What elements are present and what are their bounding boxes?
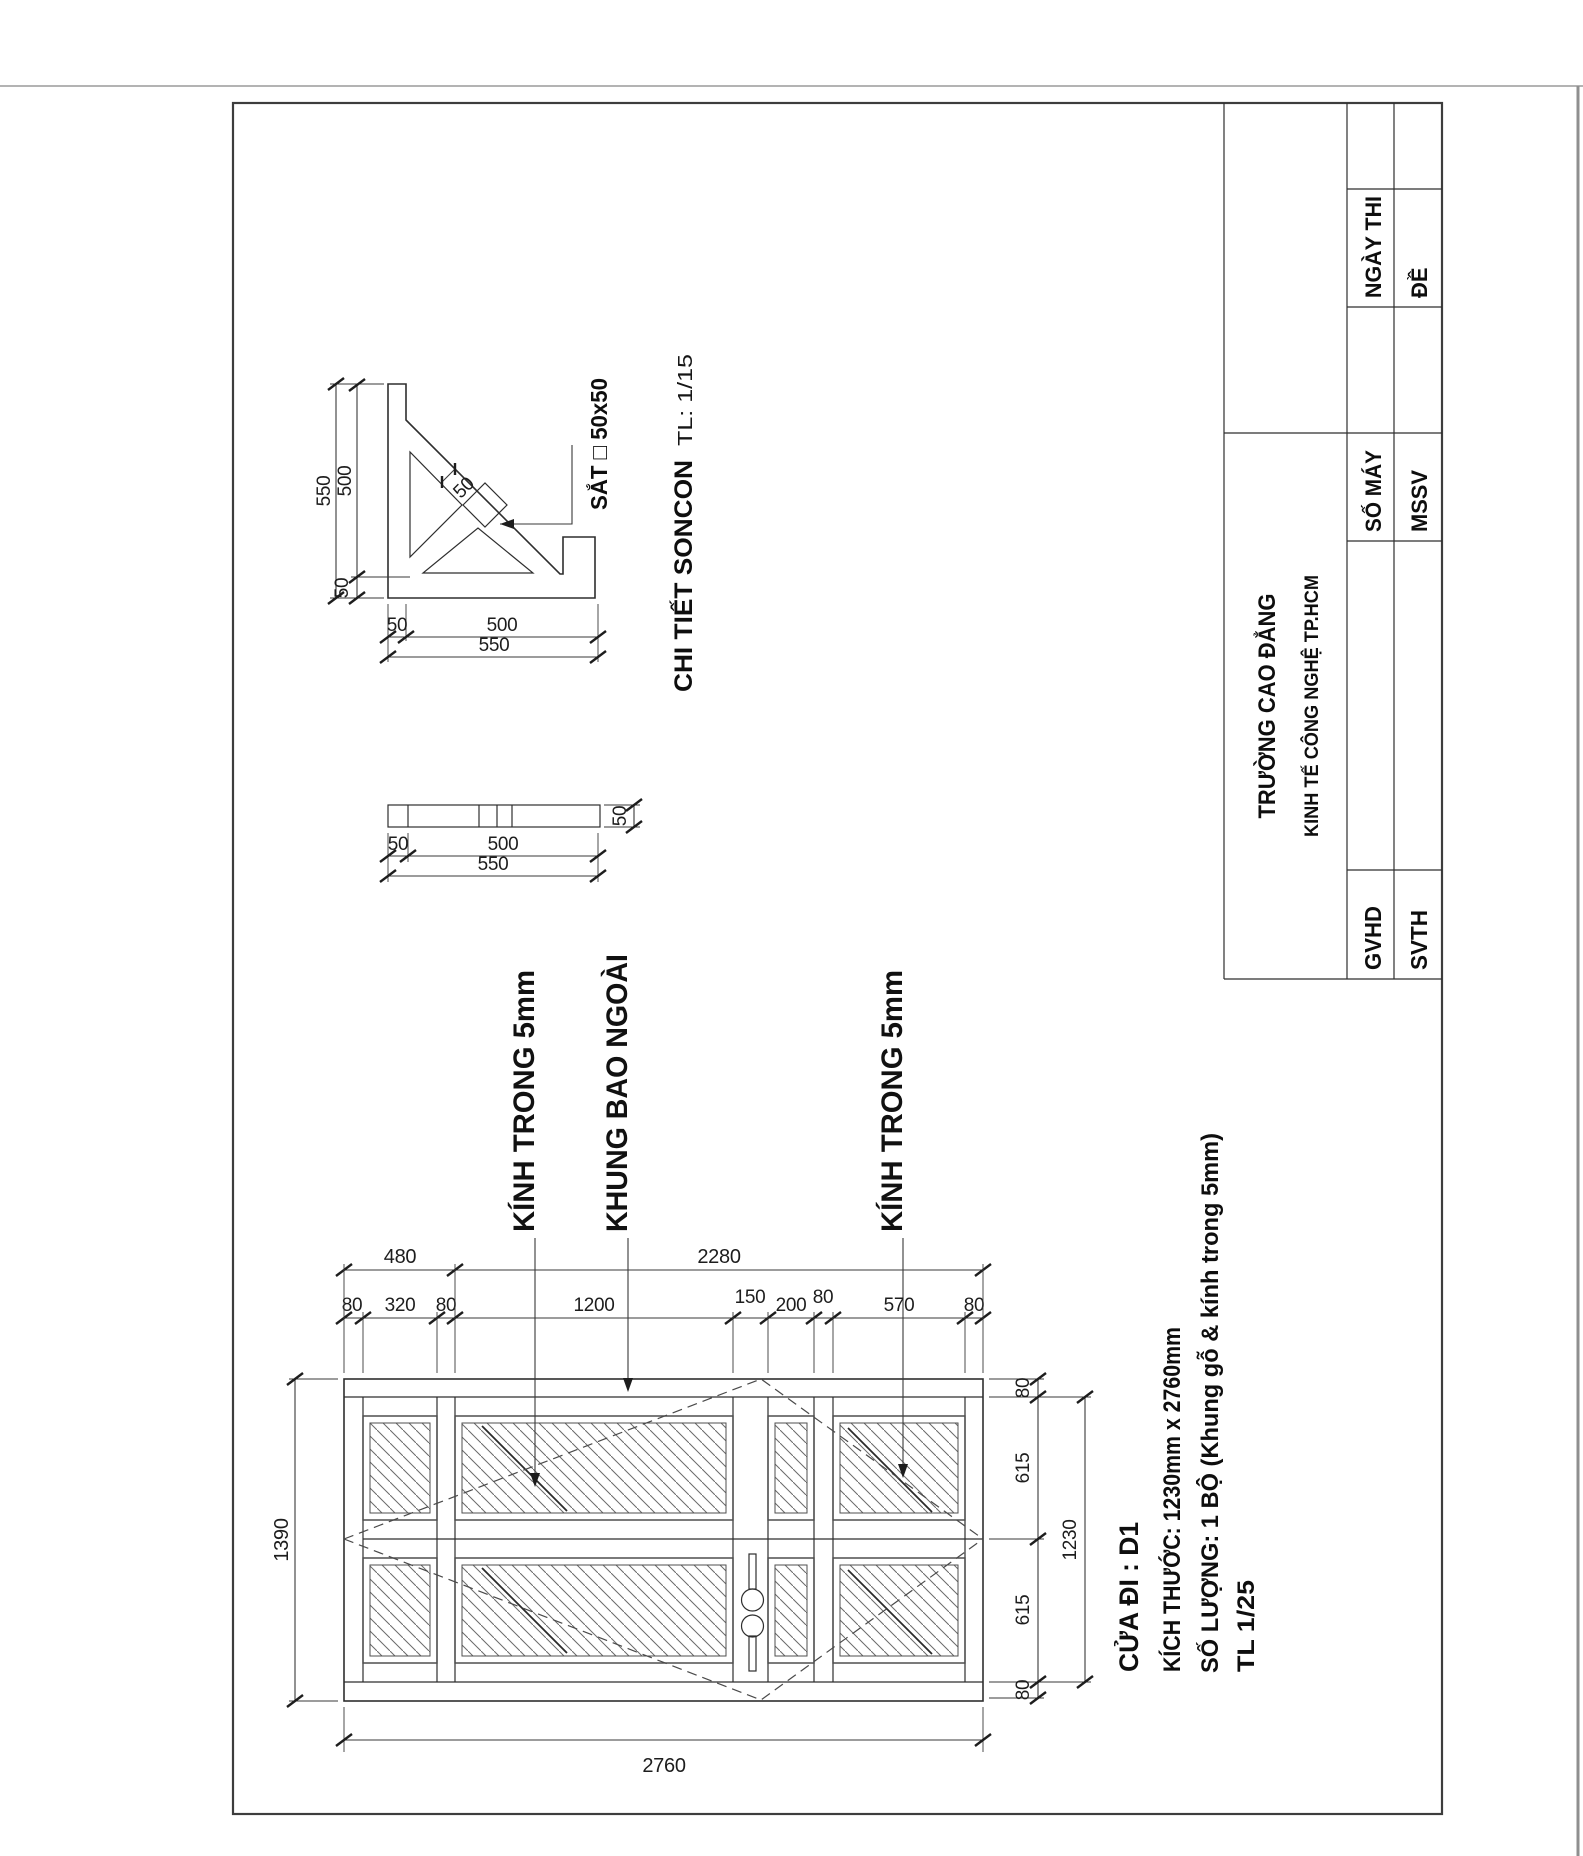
info-line1: CỬA ĐI : D1 <box>1112 1522 1144 1672</box>
dim-label-brace-50: 50 <box>449 473 478 502</box>
field-gvhd: GVHD <box>1360 906 1386 970</box>
drawing-canvas: TRƯỜNG CAO ĐẲNG KINH TẾ CÔNG NGHỆ TP.HCM… <box>0 0 1583 1856</box>
bracket-cutout-lower <box>423 528 533 573</box>
dim-80c: 80 <box>813 1287 834 1308</box>
dim-label-bar-left: 50 <box>388 834 409 855</box>
dim-80b: 80 <box>436 1295 457 1316</box>
label-glass-right: KÍNH TRONG 5mm <box>875 970 909 1232</box>
dim-label-bar-550: 550 <box>478 854 509 875</box>
dim-label-b550: 550 <box>479 635 510 656</box>
dim-2280: 2280 <box>697 1246 740 1268</box>
bracket-outline <box>388 384 595 598</box>
dim-2760: 2760 <box>642 1755 685 1777</box>
dim-label-bar-500: 500 <box>488 834 519 855</box>
soncon-bracket-detail: 50 SẮT □ 50x50 550 500 50 <box>314 378 612 663</box>
door-annotation-labels: KÍNH TRONG 5mm KHUNG BAO NGOÀI KÍNH TRON… <box>507 954 909 1487</box>
leader-glass-left: KÍNH TRONG 5mm <box>507 970 541 1487</box>
info-line2: KÍCH THƯỚC: 1230mm x 2760mm <box>1158 1327 1186 1672</box>
material-label-group: SẮT □ 50x50 <box>500 378 612 529</box>
title-block: TRƯỜNG CAO ĐẲNG KINH TẾ CÔNG NGHỆ TP.HCM… <box>1224 103 1442 979</box>
dim-label-bar-50: 50 <box>610 806 631 827</box>
bracket-left-dims: 550 500 50 <box>314 378 410 604</box>
dim-label-500: 500 <box>335 466 356 497</box>
leader-frame: KHUNG BAO NGOÀI <box>600 954 634 1392</box>
flat-bar-thickness-dim: 50 <box>604 799 642 833</box>
dim-r80a: 80 <box>1013 1378 1034 1399</box>
dim-r615b: 615 <box>1013 1595 1034 1626</box>
info-line3: SỐ LƯỢNG: 1 BỘ (Khung gỗ & kính trong 5m… <box>1196 1133 1224 1673</box>
brace-width-dim: 50 <box>442 463 479 503</box>
dim-570: 570 <box>884 1295 915 1316</box>
dim-label-b50: 50 <box>387 615 408 636</box>
detail-title-group: CHI TIẾT SONCON TL: 1/15 <box>669 354 698 692</box>
dim-label-b500: 500 <box>487 615 518 636</box>
dim-80a: 80 <box>342 1295 363 1316</box>
door-elevation <box>344 1379 983 1701</box>
field-mssv: MSSV <box>1407 470 1432 532</box>
material-label: SẮT □ 50x50 <box>585 378 612 510</box>
dim-80d: 80 <box>964 1295 985 1316</box>
dim-480: 480 <box>384 1246 417 1268</box>
dim-200: 200 <box>776 1295 807 1316</box>
flat-bar-detail: 50 50 500 550 <box>380 799 642 882</box>
flat-bar-outline <box>388 805 600 827</box>
dim-label-50: 50 <box>332 578 353 599</box>
dim-r615a: 615 <box>1013 1453 1034 1484</box>
dim-bottom-group: 2760 <box>336 1707 991 1777</box>
door-handle <box>742 1554 764 1671</box>
field-svth: SVTH <box>1406 910 1432 970</box>
bracket-bottom-dims: 50 500 550 <box>380 604 606 663</box>
field-ngay-thi: NGÀY THI <box>1361 196 1386 298</box>
dim-1230: 1230 <box>1060 1519 1081 1560</box>
dim-right-group: 80 615 615 80 1230 <box>989 1373 1093 1704</box>
drawing-page: TRƯỜNG CAO ĐẲNG KINH TẾ CÔNG NGHỆ TP.HCM… <box>0 0 1583 1856</box>
school-name-line1: TRƯỜNG CAO ĐẲNG <box>1253 594 1281 819</box>
dim-150: 150 <box>735 1287 766 1308</box>
dim-1390: 1390 <box>271 1518 293 1561</box>
school-name-line2: KINH TẾ CÔNG NGHỆ TP.HCM <box>1301 575 1323 837</box>
dim-left-group: 1390 <box>271 1373 338 1707</box>
dim-label-550: 550 <box>314 476 335 507</box>
label-frame: KHUNG BAO NGOÀI <box>600 954 634 1232</box>
title-block-grid <box>1224 103 1442 979</box>
flat-bar-bottom-dims: 50 500 550 <box>380 833 606 882</box>
detail-scale: TL: 1/15 <box>675 354 697 446</box>
dim-r80b: 80 <box>1013 1680 1034 1701</box>
field-de: ĐỀ <box>1407 267 1432 298</box>
dim-320: 320 <box>385 1295 416 1316</box>
dim-1200: 1200 <box>573 1295 614 1316</box>
field-so-may: SỐ MÁY <box>1360 450 1386 532</box>
detail-title: CHI TIẾT SONCON <box>669 460 698 692</box>
label-glass-left: KÍNH TRONG 5mm <box>507 970 541 1232</box>
info-line4: TL 1/25 <box>1233 1580 1260 1672</box>
info-block: CỬA ĐI : D1 KÍCH THƯỚC: 1230mm x 2760mm … <box>1112 1133 1260 1673</box>
leader-glass-right: KÍNH TRONG 5mm <box>875 970 909 1478</box>
